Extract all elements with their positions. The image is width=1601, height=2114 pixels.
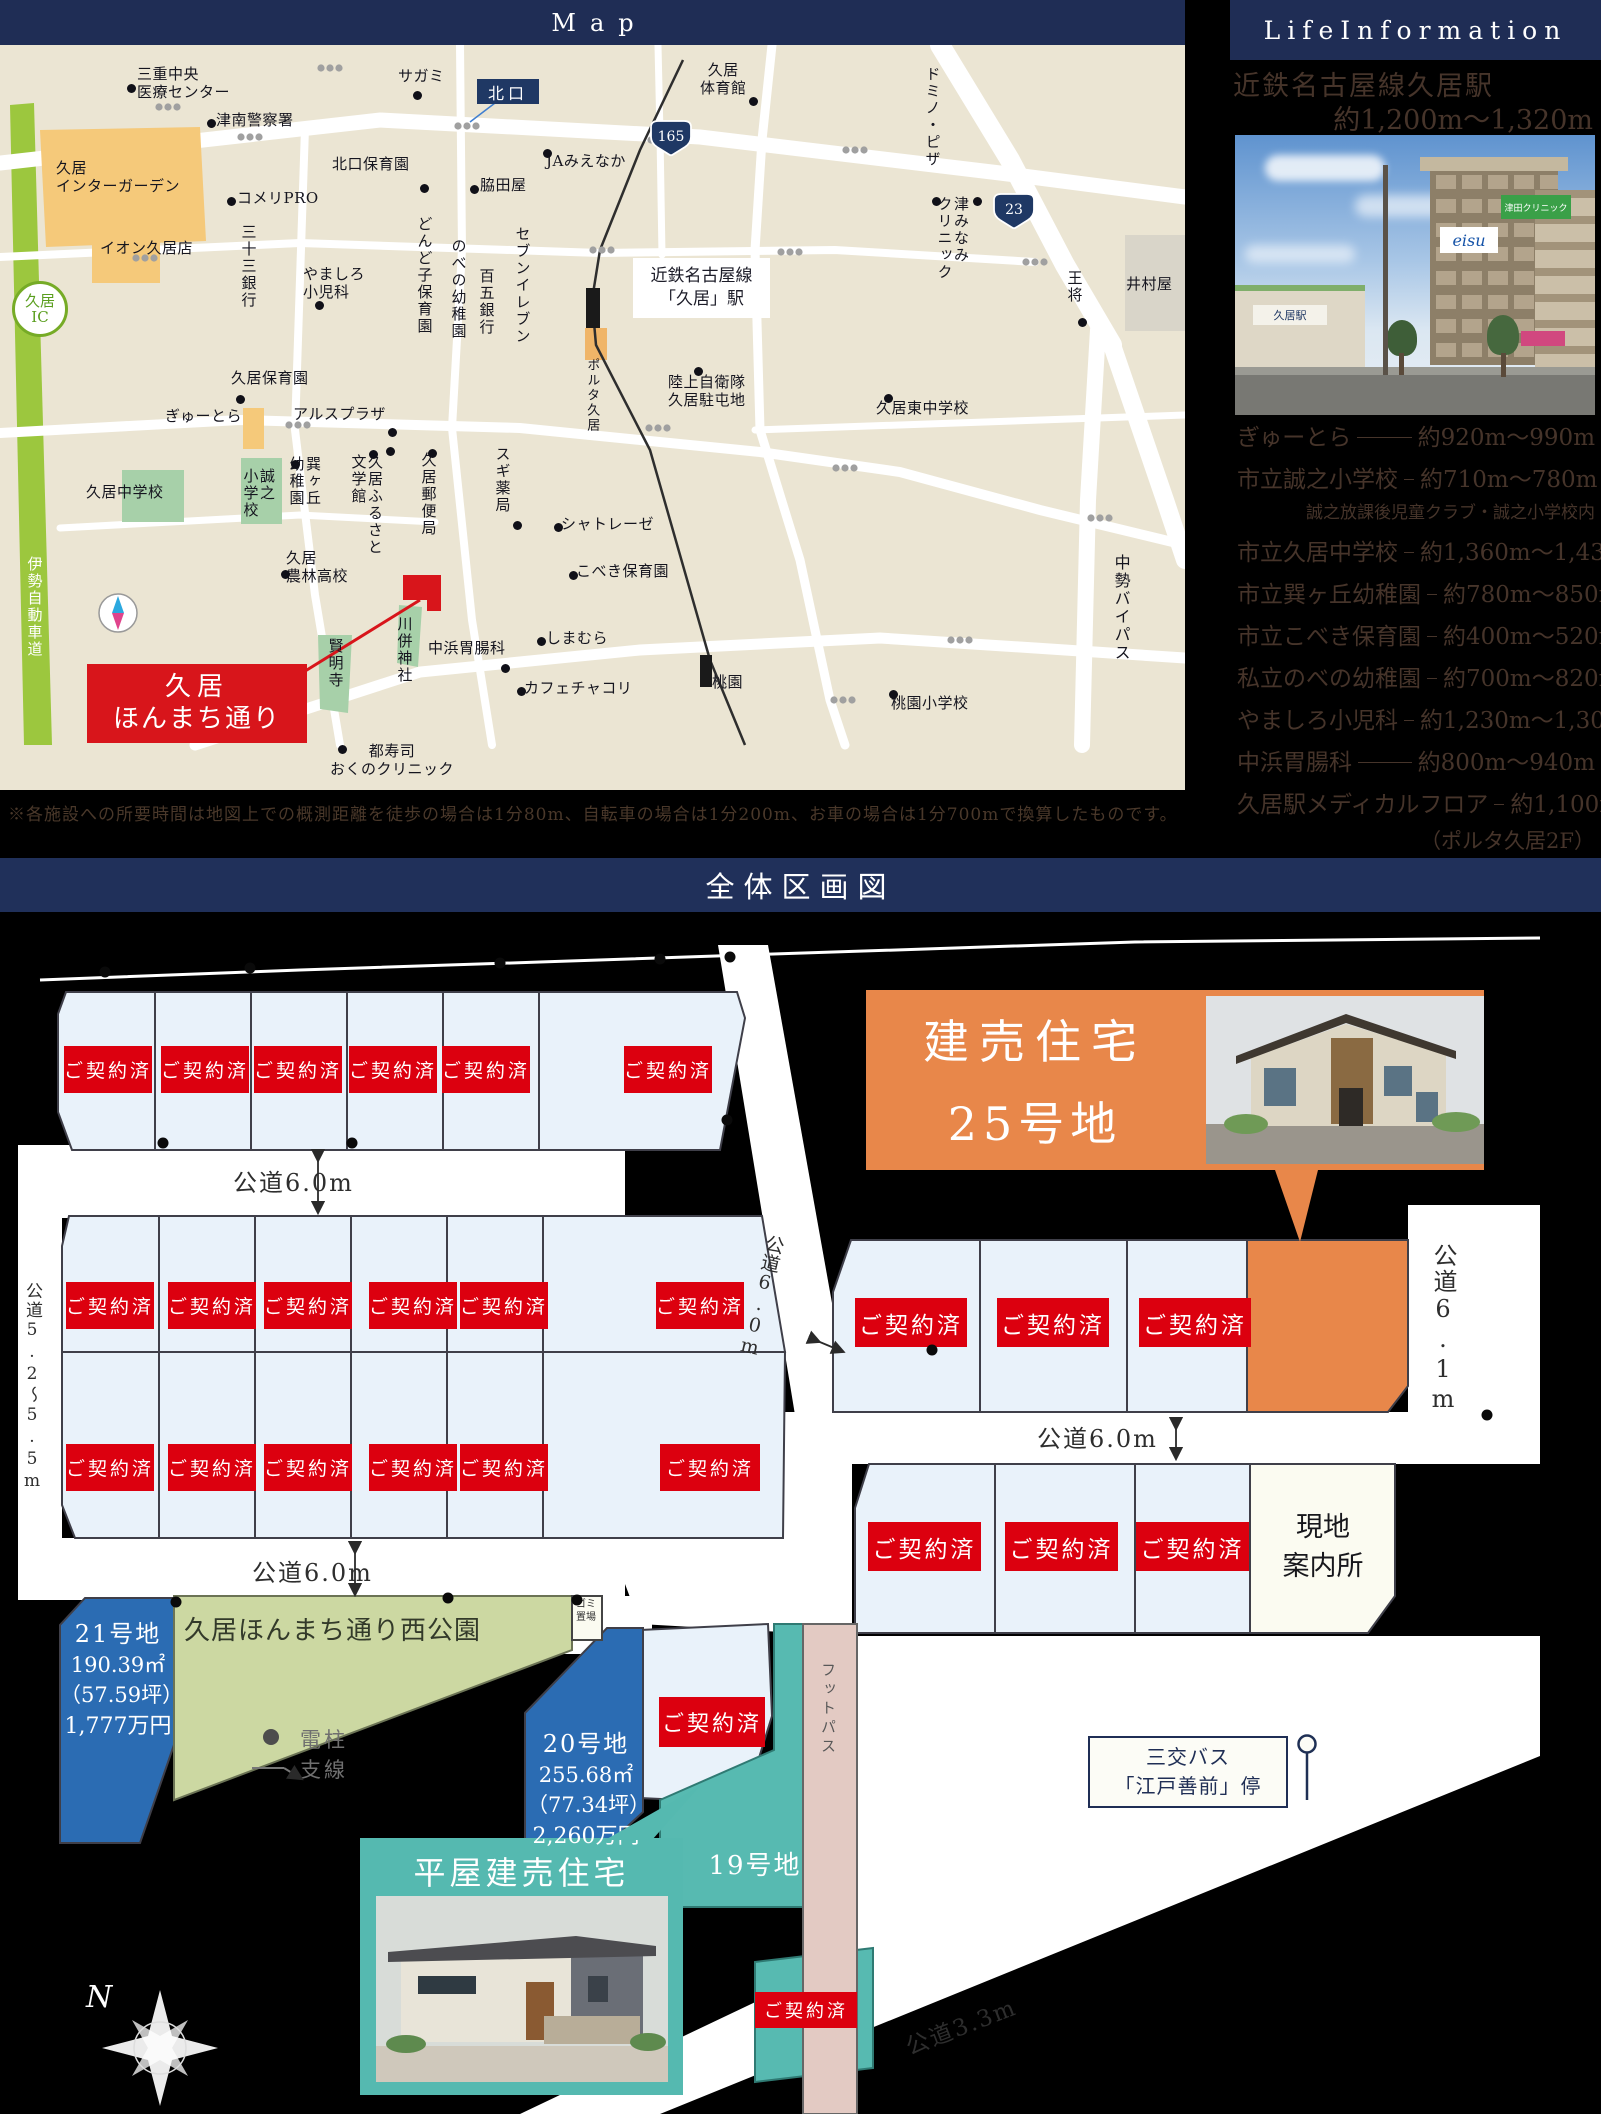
map-label: コメリPRO bbox=[237, 190, 319, 208]
poi-dot bbox=[127, 84, 136, 93]
lifeinfo-item: 市立こべき保育園約400m〜520m bbox=[1237, 617, 1595, 651]
road-6m-label: 公道6.0m bbox=[252, 1553, 373, 1588]
map-label: 川併神社 bbox=[396, 616, 413, 684]
sold-badge: ご契約済 bbox=[1136, 1522, 1249, 1571]
station-sign: 久居駅 bbox=[1253, 305, 1327, 325]
map-label: 王将 bbox=[1066, 270, 1083, 304]
lifeinfo-item: 市立巽ヶ丘幼稚園約780m〜850m bbox=[1237, 575, 1595, 609]
sold-badge: ご契約済 bbox=[868, 1522, 981, 1571]
park-label: 久居ほんまち通り西公園 bbox=[184, 1610, 564, 1647]
facility-name: やましろ小児科 bbox=[1237, 701, 1398, 735]
map-header: Map bbox=[0, 0, 1185, 45]
map-label: 桃園小学校 bbox=[891, 695, 969, 713]
hiraya-title: 平屋建売住宅 bbox=[360, 1848, 683, 1894]
lot20-info: 20号地 255.68㎡ （77.34坪） 2,260万円 bbox=[527, 1732, 645, 1848]
tree bbox=[1487, 315, 1519, 355]
sold-badge: ご契約済 bbox=[997, 1298, 1109, 1347]
sold-badge: ご契約済 bbox=[168, 1282, 256, 1329]
sold-badge: ご契約済 bbox=[660, 1444, 760, 1491]
facility-name: 私立のべの幼稚園 bbox=[1237, 659, 1421, 693]
sold-badge: ご契約済 bbox=[66, 1444, 154, 1491]
poi-dot bbox=[315, 301, 324, 310]
leader-line bbox=[1404, 479, 1414, 480]
lot21-info: 21号地 190.39㎡ （57.59坪） 1,777万円 bbox=[60, 1622, 176, 1738]
poi-dot bbox=[884, 394, 893, 403]
boundary-line bbox=[40, 938, 1540, 980]
poi-dot bbox=[513, 521, 522, 530]
facility-distance: 約780m〜850m bbox=[1443, 575, 1601, 609]
facility-name: 中浜胃腸科 bbox=[1237, 743, 1352, 777]
map-label: ドミノ・ピザ bbox=[924, 66, 941, 168]
sold-badge: ご契約済 bbox=[264, 1282, 352, 1329]
map-label: 陸上自衛隊 久居駐屯地 bbox=[668, 374, 746, 409]
facility-distance: 約1,360m〜1,430m bbox=[1420, 533, 1601, 567]
siteplan-header: 全体区画図 bbox=[0, 858, 1601, 912]
map-label: 津南警察署 bbox=[216, 112, 294, 130]
map-label: 百五銀行 bbox=[478, 268, 495, 336]
sold-badge: ご契約済 bbox=[161, 1046, 249, 1093]
eisu-sign: eisu bbox=[1440, 227, 1498, 253]
road bbox=[1235, 367, 1595, 415]
sold-badge: ご契約済 bbox=[66, 1282, 154, 1329]
banner25-line2: 25号地 bbox=[870, 1088, 1200, 1154]
map-label: やましろ 小児科 bbox=[303, 266, 365, 301]
facility-name: 久居駅メディカルフロア bbox=[1237, 785, 1488, 819]
map-label: 中勢バイパス bbox=[1112, 554, 1130, 662]
map-label: イオン久居店 bbox=[100, 240, 193, 258]
sold-badge: ご契約済 bbox=[855, 1298, 967, 1347]
footpath-label: フットパス bbox=[818, 1662, 839, 1757]
map-label: カフェチャコリ bbox=[524, 680, 632, 698]
lifeinfo-item: 私立のべの幼稚園約700m〜820m bbox=[1237, 659, 1595, 693]
road-61m-label: 公道6.1m bbox=[1426, 1243, 1461, 1415]
sold-badge: ご契約済 bbox=[168, 1444, 256, 1491]
map-label: ぎゅーとら bbox=[165, 408, 242, 426]
sold-badge: ご契約済 bbox=[1139, 1298, 1251, 1347]
facility-distance: 約1,100m〜1,230m bbox=[1510, 785, 1601, 819]
sales-office-label: 現地 案内所 bbox=[1252, 1508, 1394, 1586]
poi-dot bbox=[554, 523, 563, 532]
map-title: Map bbox=[537, 9, 647, 37]
map-label: こべき保育園 bbox=[576, 563, 669, 581]
north-gate-badge: 北口 bbox=[477, 79, 539, 104]
sold-badge: ご契約済 bbox=[624, 1046, 712, 1093]
map-label: 桃園 bbox=[712, 674, 743, 692]
facility-distance: 約920m〜990m bbox=[1418, 418, 1595, 452]
map-label: 久居郵便局 bbox=[420, 452, 437, 537]
poi-dot bbox=[470, 185, 479, 194]
lot19-label: 19号地 bbox=[700, 1845, 810, 1882]
map-label: 津みなみ クリニック bbox=[936, 196, 969, 281]
facility-distance: 約400m〜520m bbox=[1443, 617, 1601, 651]
poi-dot bbox=[537, 637, 546, 646]
map-label: 中浜胃腸科 bbox=[428, 640, 506, 658]
facility-distance: 約1,230m〜1,300m bbox=[1420, 701, 1601, 735]
map-label: 北口保育園 bbox=[332, 156, 410, 174]
poi-dot bbox=[369, 450, 378, 459]
sold-badge: ご契約済 bbox=[64, 1046, 152, 1093]
map-compass-icon bbox=[99, 594, 137, 632]
hiraya-banner: 平屋建売住宅 bbox=[360, 1838, 683, 2095]
sold-badge: ご契約済 bbox=[369, 1282, 457, 1329]
map-label: 久居 体育館 bbox=[700, 62, 747, 97]
tree bbox=[1387, 320, 1417, 356]
lifeinfo-item: やましろ小児科約1,230m〜1,300m bbox=[1237, 701, 1595, 735]
road-6m-label: 公道6.0m bbox=[1037, 1419, 1158, 1454]
hiraya-house-illustration bbox=[376, 1896, 668, 2082]
poi-dot bbox=[932, 197, 941, 206]
poi-dot bbox=[386, 447, 395, 456]
poi-dot bbox=[388, 428, 397, 437]
map-label: どんど子保育園 bbox=[416, 216, 433, 335]
road-52-55m-label: 公道5.2〜5.5m bbox=[20, 1282, 45, 1493]
leader-line bbox=[1404, 552, 1414, 553]
poi-dot bbox=[694, 367, 703, 376]
sold-badge: ご契約済 bbox=[442, 1046, 530, 1093]
map-label: アルスプラザ bbox=[293, 406, 386, 424]
lifeinfo-item: 市立誠之小学校約710m〜780m bbox=[1237, 460, 1595, 494]
lifeinfo-list: ぎゅーとら約920m〜990m市立誠之小学校約710m〜780m誠之放課後児童ク… bbox=[1237, 418, 1595, 865]
legend-pole-label: 電柱 bbox=[300, 1724, 348, 1754]
lot25-banner: 建売住宅 25号地 bbox=[866, 990, 1484, 1170]
map-label: セブンイレブン bbox=[514, 226, 531, 345]
sold-badge: ご契約済 bbox=[1005, 1522, 1118, 1571]
poi-dot bbox=[291, 460, 300, 469]
leader-line bbox=[1427, 594, 1437, 595]
lifeinfo-item: 久居駅メディカルフロア約1,100m〜1,230m bbox=[1237, 785, 1595, 819]
sold-badge: ご契約済 bbox=[656, 1282, 744, 1329]
poi-dot bbox=[1078, 318, 1087, 327]
flyer-root: Map bbox=[0, 0, 1601, 2114]
map-label: のべの幼稚園 bbox=[450, 238, 467, 340]
lifeinfo-title: LifeInformation bbox=[1264, 16, 1568, 45]
hisai-station-mark bbox=[586, 288, 600, 328]
map-label: 久居 インターガーデン bbox=[56, 160, 180, 195]
poi-dot bbox=[236, 395, 245, 404]
station-building bbox=[1235, 285, 1365, 376]
svg-text:23: 23 bbox=[1005, 202, 1023, 218]
sold-badge: ご契約済 bbox=[369, 1444, 457, 1491]
facility-distance: 約710m〜780m bbox=[1420, 460, 1597, 494]
plan-lot bbox=[1247, 1240, 1408, 1412]
leader-line bbox=[1404, 720, 1414, 721]
facility-note: （ポルタ久居2F） bbox=[1237, 825, 1595, 855]
lifeinfo-item: 中浜胃腸科約800m〜940m bbox=[1237, 743, 1595, 777]
map-label: 誠之 小学校 bbox=[242, 468, 275, 519]
siteplan-title: 全体区画図 bbox=[705, 864, 895, 906]
map-label: 久居保育園 bbox=[231, 370, 309, 388]
bus-stop-badge: 三交バス 「江戸善前」停 bbox=[1088, 1736, 1288, 1808]
leader-line bbox=[1494, 804, 1504, 805]
sold-badge: ご契約済 bbox=[264, 1444, 352, 1491]
poi-dot bbox=[569, 571, 578, 580]
legend-wire-label: 支線 bbox=[300, 1754, 348, 1784]
facility-name: 市立久居中学校 bbox=[1237, 533, 1398, 567]
poi-dot bbox=[227, 197, 236, 206]
facility-name: 市立こべき保育園 bbox=[1237, 617, 1421, 651]
station-photo: 久居駅 eisu 津田クリニック bbox=[1235, 135, 1595, 415]
poi-dot bbox=[973, 197, 982, 206]
poi-dot bbox=[889, 690, 898, 699]
facility-name: 市立巽ヶ丘幼稚園 bbox=[1237, 575, 1421, 609]
sold-badge: ご契約済 bbox=[460, 1444, 548, 1491]
map-label: 久居 農林高校 bbox=[286, 550, 348, 585]
map-label: サガミ bbox=[398, 68, 445, 86]
map-label: JAみえなか bbox=[546, 153, 626, 171]
map-label: 三十三銀行 bbox=[240, 224, 257, 309]
leader-line bbox=[1358, 762, 1412, 763]
poi-dot bbox=[543, 149, 552, 158]
poi-dot bbox=[207, 119, 216, 128]
site-location-banner: 久居 ほんまち通り bbox=[87, 664, 307, 743]
lifeinfo-header: LifeInformation bbox=[1230, 0, 1601, 60]
hisai-station-label: 近鉄名古屋線 「久居」駅 bbox=[633, 258, 770, 318]
lifeinfo-item: 市立久居中学校約1,360m〜1,430m bbox=[1237, 533, 1595, 567]
leader-line bbox=[1427, 636, 1437, 637]
map-label: 脇田屋 bbox=[480, 177, 527, 195]
map-label: 伊勢自動車道 bbox=[26, 556, 43, 658]
sold-badge: ご契約済 bbox=[659, 1697, 765, 1747]
svg-text:165: 165 bbox=[658, 129, 685, 145]
lifeinfo-item: ぎゅーとら約920m〜990m bbox=[1237, 418, 1595, 452]
map-label: シャトレーゼ bbox=[561, 516, 654, 534]
house25-illustration bbox=[1206, 996, 1484, 1164]
hisai-ic-badge: 久居 IC bbox=[12, 281, 68, 337]
road-6m-label: 公道6.0m bbox=[233, 1163, 354, 1198]
facility-name: ぎゅーとら bbox=[1237, 418, 1351, 452]
map-label: ポルタ久居 bbox=[584, 358, 598, 433]
map-label: 賢明寺 bbox=[327, 638, 344, 689]
map-label: スギ薬局 bbox=[494, 446, 511, 514]
trash-area-label: ゴミ置場 bbox=[572, 1599, 600, 1624]
clinic-sign: 津田クリニック bbox=[1501, 195, 1571, 219]
lifeinfo-station-distance: 約1,200m〜1,320m bbox=[1233, 98, 1593, 137]
map-label: しまむら bbox=[546, 630, 608, 648]
sold-badge: ご契約済 bbox=[460, 1282, 548, 1329]
sold-badge: ご契約済 bbox=[254, 1046, 342, 1093]
leader-line bbox=[1357, 437, 1411, 438]
facility-distance: 約700m〜820m bbox=[1443, 659, 1601, 693]
map-label: 都寿司 おくのクリニック bbox=[330, 743, 454, 778]
map-label: 井村屋 bbox=[1126, 276, 1173, 294]
poi-dot bbox=[501, 664, 510, 673]
map-label: 久居中学校 bbox=[86, 484, 164, 502]
north-indicator: N bbox=[86, 1980, 112, 2015]
poi-dot bbox=[420, 184, 429, 193]
poi-dot bbox=[413, 91, 422, 100]
sold-badge: ご契約済 bbox=[349, 1046, 437, 1093]
poi-dot bbox=[749, 97, 758, 106]
momozono-station-mark bbox=[700, 655, 712, 687]
facility-note: 誠之放課後児童クラブ・誠之小学校内 bbox=[1237, 498, 1595, 523]
poi-dot bbox=[428, 449, 437, 458]
poi-dot bbox=[517, 687, 526, 696]
banner25-line1: 建売住宅 bbox=[870, 1006, 1200, 1072]
facility-distance: 約800m〜940m bbox=[1418, 743, 1595, 777]
map-label: 三重中央 医療センター bbox=[137, 66, 230, 101]
facility-name: 市立誠之小学校 bbox=[1237, 460, 1398, 494]
sold-badge: ご契約済 bbox=[755, 1992, 857, 2028]
map-label: 久居ふるさと 文学館 bbox=[350, 454, 383, 556]
poi-dot bbox=[338, 745, 347, 754]
leader-line bbox=[1427, 678, 1437, 679]
utility-pole bbox=[1383, 165, 1388, 375]
poi-dot bbox=[281, 570, 290, 579]
